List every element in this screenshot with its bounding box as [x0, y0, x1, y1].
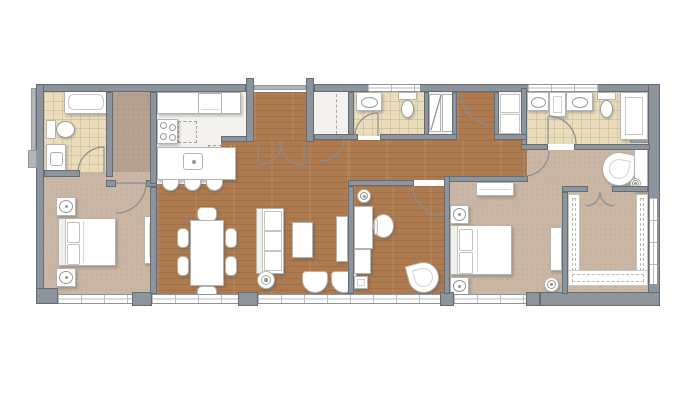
- window: [649, 198, 658, 284]
- wall: [444, 176, 450, 294]
- faucet: [192, 160, 196, 164]
- shelf-dash: [572, 198, 576, 276]
- wall: [306, 78, 314, 142]
- floor-plan-canvas: [0, 0, 700, 400]
- wall: [494, 134, 527, 140]
- window: [58, 294, 132, 304]
- duvet-fold: [477, 228, 478, 272]
- pillow: [67, 222, 80, 243]
- burner: [160, 122, 167, 129]
- nightstand: [56, 268, 76, 287]
- sofa: [256, 208, 284, 274]
- wall: [494, 92, 499, 140]
- sofa-cushion: [264, 251, 282, 271]
- burner: [160, 133, 167, 140]
- floor-lamp-icon: [357, 189, 371, 203]
- linen-shelf: [500, 94, 520, 113]
- wall: [424, 92, 429, 136]
- sofa-back: [257, 209, 263, 273]
- desk: [354, 206, 373, 249]
- hallway-floor: [348, 140, 527, 180]
- dining-chair: [197, 207, 217, 221]
- sofa-cushion: [264, 211, 282, 231]
- bed-1: [58, 218, 116, 266]
- pillow: [67, 244, 80, 265]
- headboard: [59, 219, 66, 265]
- nightstand: [450, 205, 469, 224]
- shower: [620, 92, 648, 140]
- shelf-dash: [572, 274, 644, 282]
- wall: [150, 92, 157, 184]
- wall: [521, 88, 527, 150]
- hall-closet-shelf-dashed: [112, 95, 148, 109]
- laundry-unit: [429, 94, 441, 132]
- wall: [44, 170, 80, 177]
- vanity-center-cabinet: [549, 92, 566, 117]
- closet-shelving-right: [636, 194, 648, 280]
- tv-console: [336, 216, 348, 262]
- nightstand: [56, 197, 76, 216]
- closet-shelving-left: [568, 194, 580, 280]
- toilet-bowl: [56, 121, 75, 138]
- sink-basin: [361, 97, 378, 108]
- dining-chair: [177, 256, 189, 276]
- wall: [540, 292, 660, 306]
- shelf-dash: [640, 198, 644, 276]
- chair-inner: [412, 266, 435, 289]
- printer-stand: [354, 276, 368, 289]
- entry-threshold: [254, 85, 306, 90]
- wall: [106, 180, 116, 187]
- tv-console: [550, 227, 562, 271]
- vanity-2: [566, 92, 593, 111]
- toilet-bowl: [401, 100, 414, 118]
- coat-closet-rod-dashed: [336, 94, 337, 134]
- coffee-table: [292, 222, 313, 258]
- pillow: [459, 252, 473, 274]
- coat-closet-floor: [314, 92, 348, 136]
- sofa-cushion: [264, 231, 282, 251]
- linen-shelf: [500, 114, 520, 134]
- toilet-tank: [597, 92, 616, 100]
- pier: [526, 292, 540, 306]
- lamp-icon: [453, 280, 466, 292]
- burner: [169, 124, 176, 131]
- dresser: [476, 182, 514, 196]
- foyer-floor: [254, 92, 306, 140]
- window: [368, 84, 420, 92]
- dresser-line: [479, 189, 511, 190]
- master-bed: [450, 225, 512, 275]
- pier: [36, 288, 58, 304]
- pier: [238, 292, 258, 306]
- powder-sink-counter: [356, 92, 382, 111]
- island-sink: [183, 153, 203, 170]
- lamp-icon: [59, 200, 73, 213]
- lamp-icon: [360, 192, 368, 200]
- printer-inner: [357, 279, 365, 286]
- lamp-icon: [547, 280, 556, 289]
- dining-chair: [225, 256, 237, 276]
- bathtub-inner: [68, 94, 104, 110]
- wall: [348, 92, 354, 136]
- wall: [36, 84, 44, 304]
- lamp-icon: [453, 208, 466, 221]
- vestibule-floor: [457, 92, 494, 140]
- wall: [36, 84, 246, 92]
- floor-lamp-icon: [257, 271, 275, 289]
- shower-inner: [625, 97, 643, 135]
- pillow: [459, 229, 473, 251]
- task-chair: [373, 214, 394, 238]
- sink-basin: [531, 97, 546, 108]
- headboard: [451, 226, 458, 274]
- wall: [246, 78, 254, 142]
- duvet-fold: [83, 221, 84, 263]
- floor-lamp-center: [264, 278, 268, 282]
- wall: [348, 186, 354, 294]
- wall: [380, 134, 457, 140]
- toilet-tank: [46, 120, 56, 139]
- wall: [521, 144, 548, 150]
- window: [152, 294, 238, 304]
- cooktop: [157, 119, 178, 144]
- window: [258, 294, 440, 304]
- wall: [314, 134, 358, 140]
- vanity-1: [527, 92, 549, 111]
- oven-handle: [201, 109, 219, 110]
- window: [528, 84, 598, 92]
- column: [28, 150, 37, 168]
- toilet-tank: [398, 92, 417, 100]
- dining-chair: [177, 228, 189, 248]
- round-side-table: [544, 277, 559, 292]
- oven: [198, 93, 222, 114]
- wall: [446, 176, 528, 182]
- return-cabinet: [354, 249, 371, 274]
- cabinet-inner: [553, 96, 562, 113]
- burner: [169, 134, 176, 141]
- pier: [440, 292, 454, 306]
- pier: [132, 292, 152, 306]
- wall: [314, 84, 650, 92]
- wall: [612, 186, 648, 192]
- wall: [150, 187, 157, 294]
- upper-cabinet-dashed: [178, 121, 197, 143]
- chair-back: [374, 219, 378, 235]
- lamp-icon: [59, 271, 73, 284]
- vanity-sink: [50, 152, 63, 166]
- sink-basin: [572, 97, 588, 108]
- window: [454, 294, 526, 304]
- dining-chair: [225, 228, 237, 248]
- toilet-bowl: [600, 100, 613, 118]
- wall: [574, 144, 650, 150]
- wall: [221, 136, 247, 142]
- wall: [562, 192, 568, 294]
- bathtub: [64, 90, 108, 114]
- chair-inner: [607, 157, 631, 181]
- dining-table: [190, 220, 224, 286]
- closet-shelving-bottom: [568, 270, 648, 286]
- wall: [348, 180, 414, 186]
- wall: [106, 92, 113, 177]
- wall: [452, 92, 457, 140]
